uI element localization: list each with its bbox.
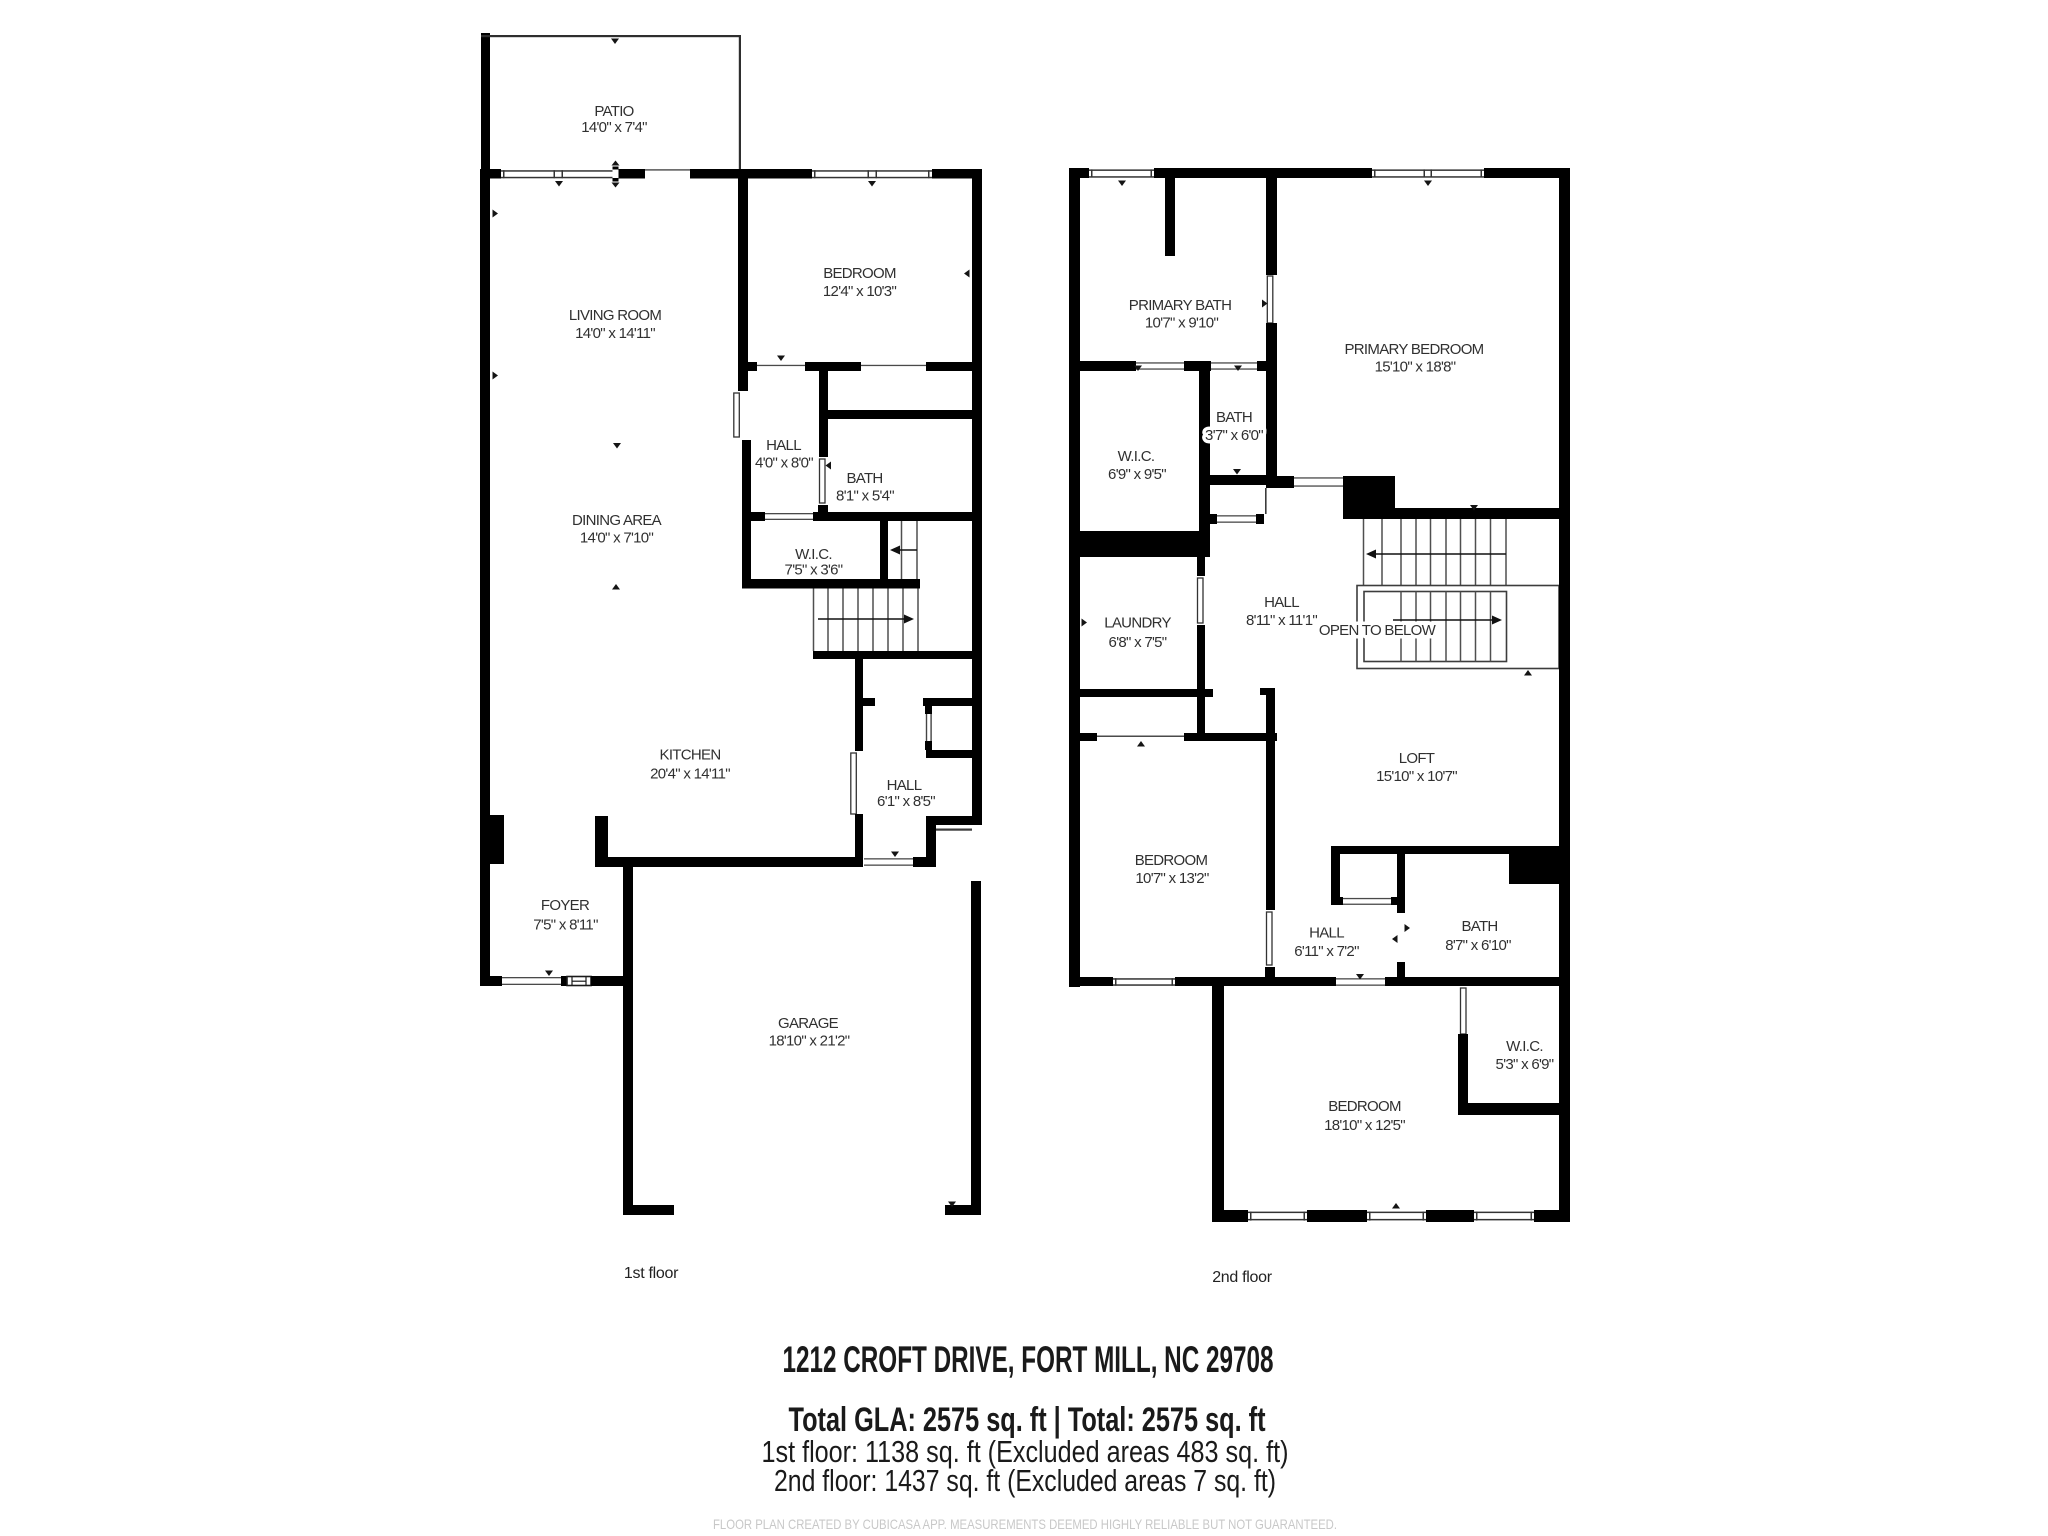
svg-text:FOYER: FOYER	[541, 897, 590, 914]
svg-text:3'7" x 6'0": 3'7" x 6'0"	[1205, 427, 1263, 444]
svg-text:1212 CROFT DRIVE, FORT MILL, N: 1212 CROFT DRIVE, FORT MILL, NC 29708	[783, 1339, 1274, 1380]
svg-text:6'11" x 7'2": 6'11" x 7'2"	[1294, 943, 1359, 960]
svg-text:2nd floor: 1437 sq. ft (Exclud: 2nd floor: 1437 sq. ft (Excluded areas 7…	[774, 1463, 1276, 1498]
svg-text:PRIMARY BEDROOM: PRIMARY BEDROOM	[1345, 341, 1484, 358]
svg-text:BATH: BATH	[1461, 918, 1497, 935]
svg-text:GARAGE: GARAGE	[778, 1015, 839, 1032]
svg-text:7'5" x 3'6": 7'5" x 3'6"	[785, 562, 843, 579]
svg-text:15'10" x 10'7": 15'10" x 10'7"	[1376, 768, 1457, 785]
svg-text:W.I.C.: W.I.C.	[1506, 1038, 1543, 1055]
svg-text:KITCHEN: KITCHEN	[660, 747, 721, 764]
svg-text:BEDROOM: BEDROOM	[1135, 852, 1208, 869]
svg-text:8'11" x 11'1": 8'11" x 11'1"	[1246, 612, 1317, 629]
svg-text:BATH: BATH	[1216, 409, 1252, 426]
svg-text:BATH: BATH	[846, 470, 882, 487]
svg-text:14'0" x 7'4": 14'0" x 7'4"	[581, 119, 647, 136]
svg-text:15'10" x 18'8": 15'10" x 18'8"	[1375, 359, 1456, 376]
svg-text:10'7" x 13'2": 10'7" x 13'2"	[1135, 870, 1209, 887]
svg-text:LAUNDRY: LAUNDRY	[1104, 615, 1171, 632]
svg-text:14'0" x 7'10": 14'0" x 7'10"	[580, 530, 654, 547]
svg-text:HALL: HALL	[766, 437, 801, 454]
svg-text:PRIMARY BATH: PRIMARY BATH	[1129, 297, 1231, 314]
svg-text:7'5" x 8'11": 7'5" x 8'11"	[533, 917, 598, 934]
svg-text:W.I.C.: W.I.C.	[795, 546, 832, 563]
svg-text:BEDROOM: BEDROOM	[1328, 1098, 1401, 1115]
svg-text:W.I.C.: W.I.C.	[1118, 448, 1155, 465]
svg-text:HALL: HALL	[887, 777, 922, 794]
svg-text:8'7" x 6'10": 8'7" x 6'10"	[1445, 937, 1511, 954]
svg-text:LIVING ROOM: LIVING ROOM	[569, 307, 662, 324]
svg-text:6'8" x 7'5": 6'8" x 7'5"	[1109, 634, 1167, 651]
svg-text:HALL: HALL	[1264, 594, 1299, 611]
svg-text:BEDROOM: BEDROOM	[823, 265, 896, 282]
svg-text:4'0" x 8'0": 4'0" x 8'0"	[755, 455, 813, 472]
svg-text:14'0" x 14'11": 14'0" x 14'11"	[575, 325, 655, 342]
svg-text:PATIO: PATIO	[594, 103, 633, 120]
svg-text:OPEN TO BELOW: OPEN TO BELOW	[1319, 622, 1437, 639]
svg-text:6'9" x 9'5": 6'9" x 9'5"	[1108, 466, 1166, 483]
svg-text:HALL: HALL	[1309, 925, 1344, 942]
svg-text:LOFT: LOFT	[1399, 750, 1435, 767]
svg-text:2nd floor: 2nd floor	[1212, 1269, 1273, 1286]
svg-text:1st floor: 1st floor	[624, 1265, 679, 1282]
svg-text:6'1" x 8'5": 6'1" x 8'5"	[877, 793, 935, 810]
svg-text:12'4" x 10'3": 12'4" x 10'3"	[823, 283, 897, 300]
svg-text:5'3" x 6'9": 5'3" x 6'9"	[1496, 1056, 1554, 1073]
svg-text:10'7" x 9'10": 10'7" x 9'10"	[1145, 315, 1219, 332]
svg-text:8'1" x 5'4": 8'1" x 5'4"	[836, 488, 894, 505]
svg-text:20'4" x 14'11": 20'4" x 14'11"	[650, 766, 730, 783]
svg-text:18'10" x 12'5": 18'10" x 12'5"	[1324, 1117, 1405, 1134]
svg-text:FLOOR PLAN CREATED BY CUBICASA: FLOOR PLAN CREATED BY CUBICASA APP. MEAS…	[713, 1517, 1337, 1532]
svg-text:18'10" x 21'2": 18'10" x 21'2"	[769, 1033, 850, 1050]
svg-text:DINING AREA: DINING AREA	[572, 512, 662, 529]
